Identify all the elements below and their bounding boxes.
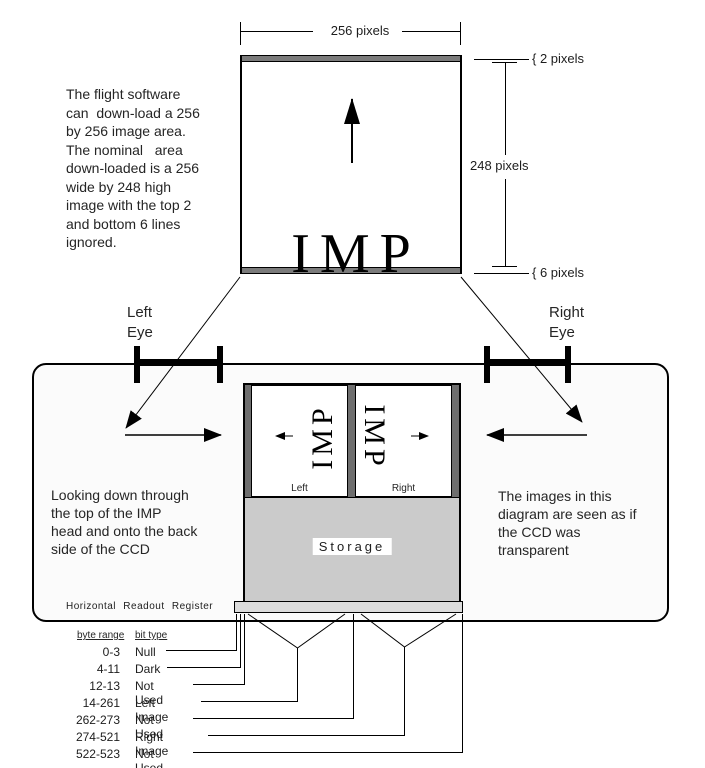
imp-ccd-diagram: 256 pixels IMP { 2 pixels 248 pixels { 6… (0, 0, 705, 768)
width-dimension-label: 256 pixels (310, 24, 410, 38)
byte-range-value: 4-11 (40, 662, 120, 676)
byte-range-value: 262-273 (40, 713, 120, 727)
right-imp-wordmark: IMP (360, 387, 388, 487)
bit-type-value: Not Used (135, 747, 163, 768)
left-eye-bracket (134, 359, 223, 366)
ccd-chip: Left Right Storage (243, 383, 461, 603)
right-eye-bracket-end-left (484, 346, 490, 383)
flight-software-note: The flight software can down-load a 256 … (66, 85, 218, 252)
left-imp-wordmark: IMP (309, 387, 337, 487)
right-eye-label: Right Eye (549, 303, 584, 343)
byte-range-value: 522-523 (40, 747, 120, 761)
top-ignored-lines-bar (242, 56, 460, 62)
transparency-note: The images in this diagram are seen as i… (498, 487, 638, 559)
left-eye-label: Left Eye (127, 303, 153, 343)
storage-area: Storage (245, 497, 459, 601)
bit-type-value: Null (135, 645, 156, 659)
right-eye-bracket (484, 359, 571, 366)
downlink-image-area-box: IMP (240, 55, 462, 274)
left-eye-bracket-end-left (134, 346, 140, 383)
callout-lines (166, 614, 463, 753)
readout-register-label: Horizontal Readout Register (66, 601, 213, 612)
readout-register-bar (234, 601, 463, 613)
bottom-margin-label: { 6 pixels (532, 266, 584, 280)
imp-wordmark: IMP (242, 226, 460, 282)
byte-range-value: 14-261 (40, 696, 120, 710)
top-margin-label: { 2 pixels (532, 52, 584, 66)
looking-down-note: Looking down through the top of the IMP … (51, 486, 226, 558)
byte-range-value: 12-13 (40, 679, 120, 693)
bit-type-header: bit type (135, 630, 167, 641)
height-dimension-label: 248 pixels (470, 159, 529, 173)
right-eye-bracket-end-right (565, 346, 571, 383)
storage-label: Storage (313, 538, 392, 555)
left-eye-bracket-end-right (217, 346, 223, 383)
byte-range-header: byte range (77, 630, 124, 641)
byte-range-value: 0-3 (40, 645, 120, 659)
byte-range-value: 274-521 (40, 730, 120, 744)
bit-type-value: Dark (135, 662, 160, 676)
